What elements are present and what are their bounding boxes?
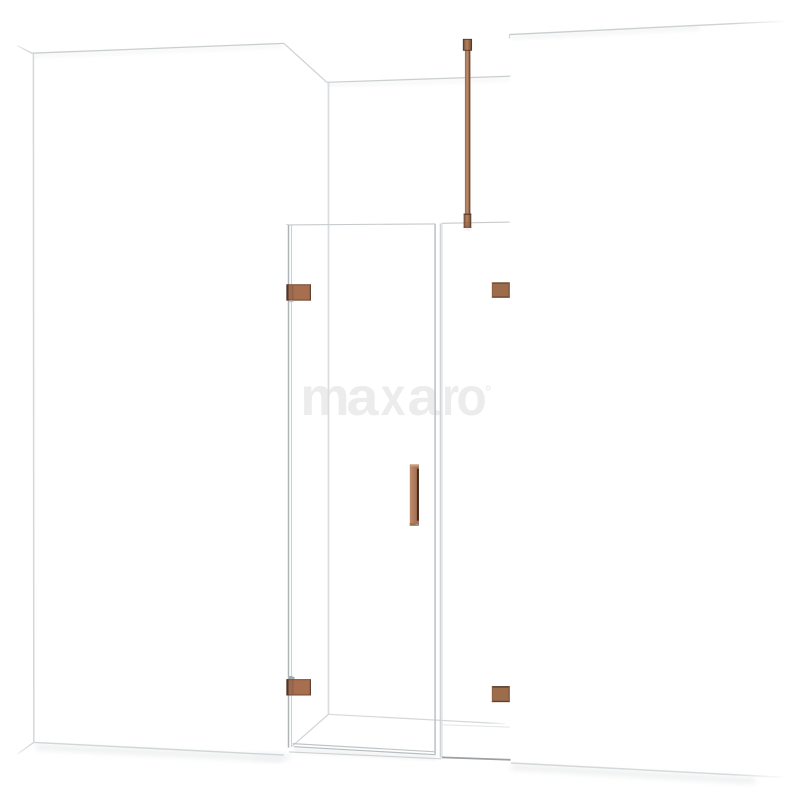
svg-text:m: m — [300, 366, 349, 427]
svg-text:o: o — [456, 366, 486, 426]
svg-text:a: a — [346, 366, 379, 427]
svg-text:x: x — [381, 367, 406, 427]
